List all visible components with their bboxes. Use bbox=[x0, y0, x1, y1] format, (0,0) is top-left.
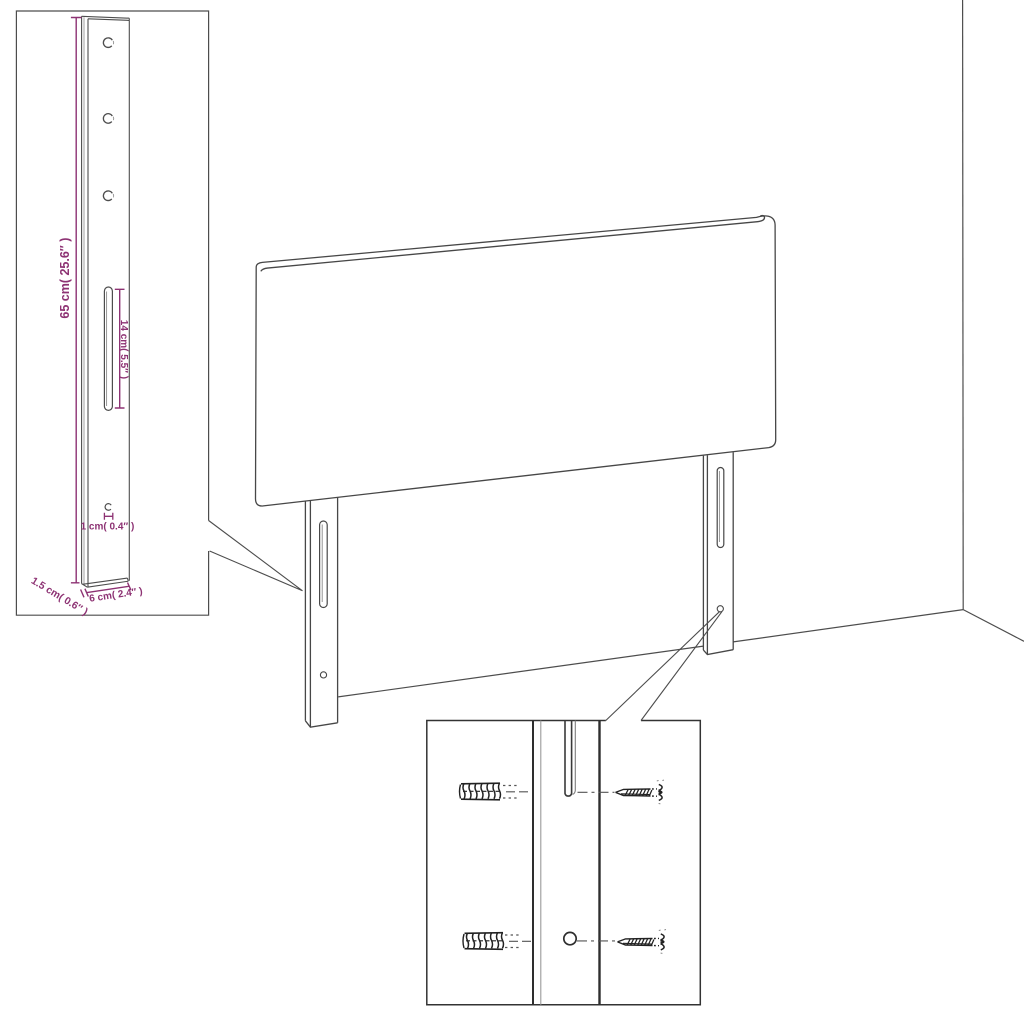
svg-text:14 cm( 5.5″ ): 14 cm( 5.5″ ) bbox=[118, 320, 129, 379]
svg-text:1 cm( 0.4″ ): 1 cm( 0.4″ ) bbox=[81, 521, 135, 532]
svg-text:65 cm( 25.6″ ): 65 cm( 25.6″ ) bbox=[58, 238, 72, 319]
